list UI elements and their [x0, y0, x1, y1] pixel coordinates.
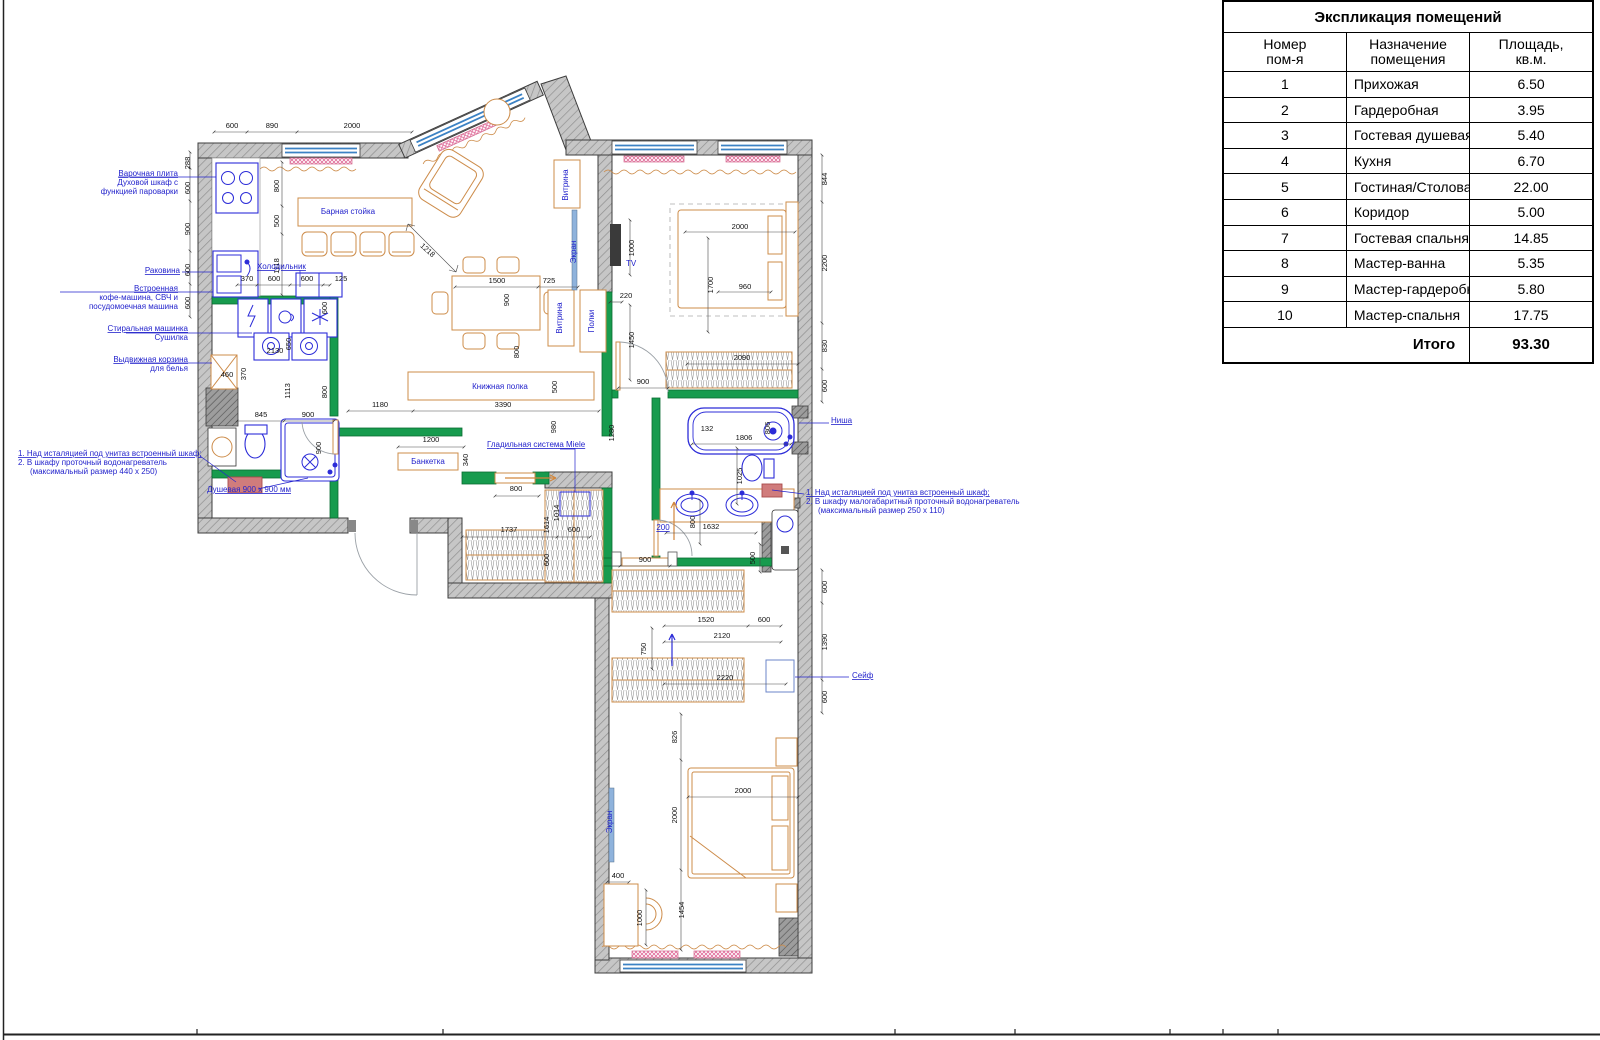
annotation-label: Раковина	[145, 266, 181, 275]
room-number: 1	[1223, 72, 1346, 98]
annotation-label: Витрина	[555, 302, 564, 334]
annotation-label: Банкетка	[411, 457, 445, 466]
dim-label: 2220	[717, 673, 734, 682]
room-area: 5.80	[1470, 276, 1593, 302]
dim-label: 1614	[542, 517, 551, 534]
bar-stool-icon	[389, 232, 414, 256]
annotation-label: 200	[656, 523, 670, 532]
room-area: 5.35	[1470, 251, 1593, 277]
dim-label: 132	[701, 424, 714, 433]
dining-chair-icon	[432, 292, 448, 314]
dim-label: 600	[820, 691, 829, 704]
dim-label: 1700	[706, 277, 715, 294]
dim-label: 1280	[607, 425, 616, 442]
dim-label: 340	[461, 454, 470, 467]
annotation-label: Душевая 900 х 900 мм	[207, 485, 291, 494]
room-number: 3	[1223, 123, 1346, 149]
room-number: 2	[1223, 97, 1346, 123]
bar-stool-icon	[360, 232, 385, 256]
annotation-label: Экран	[605, 811, 614, 834]
nightstand-icon	[776, 738, 797, 766]
annotation-label: 2. В шкафу проточный водонагреватель	[18, 458, 167, 467]
dim-label: 600	[320, 302, 329, 315]
hob-icon	[216, 163, 258, 213]
room-name: Прихожая	[1346, 72, 1469, 98]
dim-label: 2000	[344, 121, 361, 130]
dim-label: 650	[284, 338, 293, 351]
tv-icon	[610, 224, 621, 266]
annotation-label: Стиральная машинка	[108, 324, 189, 333]
dim-label: 500	[748, 552, 757, 565]
dim-label: 800	[510, 484, 523, 493]
dim-label: 1000	[627, 240, 636, 257]
dim-label: 800	[688, 516, 697, 529]
dim-label: 900	[302, 410, 315, 419]
room-number: 5	[1223, 174, 1346, 200]
col-header-area: Площадь, кв.м.	[1470, 33, 1593, 72]
annotation-label: 1. Над исталяцией под унитаз встроенный …	[18, 449, 202, 458]
room-area: 5.40	[1470, 123, 1593, 149]
microwave-icon	[271, 299, 301, 337]
room-name: Коридор	[1346, 199, 1469, 225]
radiator-icon	[694, 951, 740, 958]
dim-label: 900	[637, 377, 650, 386]
toilet-icon	[742, 455, 774, 481]
dim-label: 844	[820, 173, 829, 186]
dim-label: 800	[272, 180, 281, 193]
annotation-label: Витрина	[561, 169, 570, 201]
dim-label: 1737	[501, 525, 518, 534]
total-label: Итого	[1223, 327, 1470, 363]
entrance-door-arc	[355, 533, 417, 595]
col-header-name: Назначение помещения	[1346, 33, 1469, 72]
door-leaf	[333, 420, 338, 454]
dim-label: 1025	[735, 468, 744, 485]
room-number: 6	[1223, 199, 1346, 225]
room-number: 4	[1223, 148, 1346, 174]
dim-label: 600	[268, 274, 281, 283]
annotation-label: Экран	[569, 241, 578, 264]
dim-label: 220	[620, 291, 633, 300]
dim-label: 2120	[714, 631, 731, 640]
dim-label: 1454	[677, 902, 686, 919]
room-name: Гостиная/Столовая	[1346, 174, 1469, 200]
annotation-label: Выдвижная корзина	[113, 355, 188, 364]
annotation-label: Гладильная система Miele	[487, 440, 586, 449]
room-name: Кухня	[1346, 148, 1469, 174]
room-area: 17.75	[1470, 302, 1593, 328]
dining-chair-icon	[463, 333, 485, 349]
annotation-label: Полки	[587, 310, 596, 333]
annotation-label: (максимальный размер 440 х 250)	[30, 467, 158, 476]
annotation-label: Варочная плита	[118, 169, 178, 178]
dim-label: 1390	[820, 634, 829, 651]
dining-chair-icon	[463, 257, 485, 273]
master-bed-icon	[688, 768, 794, 878]
room-area: 6.50	[1470, 72, 1593, 98]
table-row: 9Мастер-гардеробная5.80	[1223, 276, 1593, 302]
room-area: 5.00	[1470, 199, 1593, 225]
annotation-label: (максимальный размер 250 х 110)	[818, 506, 945, 515]
table-row: 2Гардеробная3.95	[1223, 97, 1593, 123]
dryer-icon	[292, 333, 327, 360]
annotation-label: кофе-машина, СВЧ и	[99, 293, 178, 302]
room-name: Мастер-гардеробная	[1346, 276, 1469, 302]
room-name: Мастер-ванна	[1346, 251, 1469, 277]
dim-label: 1632	[703, 522, 720, 531]
explication-table: Экспликация помещений Номер пом-я Назнач…	[1222, 0, 1594, 364]
table-row: 5Гостиная/Столовая22.00	[1223, 174, 1593, 200]
annotation-label: Встроенная	[134, 284, 178, 293]
dim-label: 2090	[734, 353, 751, 362]
dim-label: 600	[542, 554, 551, 567]
shower-icon	[281, 419, 339, 481]
dim-label: 600	[820, 581, 829, 594]
shower-icon	[772, 510, 798, 570]
annotation-label: посудомоечная машина	[89, 302, 179, 311]
room-number: 10	[1223, 302, 1346, 328]
dim-label: 370	[241, 274, 254, 283]
dim-label: 800	[320, 386, 329, 399]
dim-label: 2000	[732, 222, 749, 231]
annotation-label: Книжная полка	[472, 382, 528, 391]
dim-label: 826	[670, 731, 679, 744]
dim-label: 600	[301, 274, 314, 283]
dim-label: 1014	[552, 505, 561, 522]
table-row: 10Мастер-спальня17.75	[1223, 302, 1593, 328]
annotation-label: Барная стойка	[321, 207, 376, 216]
room-area: 22.00	[1470, 174, 1593, 200]
room-name: Гостевая душевая	[1346, 123, 1469, 149]
annotation-label: 1. Над исталяцией под унитаз встроенный …	[806, 488, 990, 497]
bar-stool-icon	[331, 232, 356, 256]
dim-label: 2200	[820, 255, 829, 272]
room-area: 14.85	[1470, 225, 1593, 251]
drawing-sheet: 6008902000121828860090060060080050011183…	[0, 0, 1600, 1040]
dim-label: 1000	[635, 910, 644, 927]
dim-label: 1500	[489, 276, 506, 285]
guest-bed-icon	[678, 202, 798, 316]
annotation-label: Сушилка	[155, 333, 189, 342]
dim-label: 400	[612, 871, 625, 880]
dim-label: 500	[550, 381, 559, 394]
dim-label: 2000	[735, 786, 752, 795]
dim-label: 900	[639, 555, 652, 564]
desk	[604, 884, 638, 946]
annotation-label: Сейф	[852, 671, 874, 680]
room-area: 6.70	[1470, 148, 1593, 174]
room-number: 8	[1223, 251, 1346, 277]
dim-label: 800	[512, 346, 521, 359]
side-table-icon	[484, 99, 510, 125]
dim-label: 960	[739, 282, 752, 291]
table-row: 4Кухня6.70	[1223, 148, 1593, 174]
dim-label: 500	[272, 215, 281, 228]
room-number: 9	[1223, 276, 1346, 302]
dim-label: 2130	[267, 346, 284, 355]
dim-label: 460	[221, 370, 234, 379]
table-row: 1Прихожая6.50	[1223, 72, 1593, 98]
dim-label: 125	[335, 274, 348, 283]
door-leaf	[616, 342, 620, 390]
table-title: Экспликация помещений	[1223, 1, 1593, 33]
room-name: Гостевая спальня/Детская	[1346, 225, 1469, 251]
table-row: 7Гостевая спальня/Детская14.85	[1223, 225, 1593, 251]
dim-label: 845	[255, 410, 268, 419]
dim-label: 288	[183, 157, 192, 170]
table-row: 8Мастер-ванна5.35	[1223, 251, 1593, 277]
dim-label: 2000	[670, 807, 679, 824]
room-number: 7	[1223, 225, 1346, 251]
dim-label: 1180	[372, 400, 388, 409]
dim-label: 1520	[698, 615, 715, 624]
dim-label: 600	[183, 264, 192, 277]
annotation-label: для белья	[150, 364, 188, 373]
dim-label: 900	[314, 442, 323, 455]
dim-label: 600	[226, 121, 239, 130]
annotation-label: Холодильник	[257, 262, 306, 271]
dim-label: 980	[549, 421, 558, 434]
coffee-machine-icon	[238, 299, 268, 337]
annotation-label: функцией пароварки	[101, 187, 178, 196]
dim-label: 600	[568, 525, 581, 534]
dim-label: 725	[543, 276, 556, 285]
table-row: 6Коридор5.00	[1223, 199, 1593, 225]
dim-label: 3390	[495, 400, 512, 409]
dim-label: 600	[758, 615, 771, 624]
annotation-label: Духовой шкаф с	[117, 178, 178, 187]
room-area: 3.95	[1470, 97, 1593, 123]
dim-label: 1200	[423, 435, 440, 444]
dim-label: 806	[763, 422, 772, 435]
safe-icon	[766, 660, 794, 692]
radiator-icon	[726, 156, 780, 162]
dining-chair-icon	[497, 257, 519, 273]
annotation-label: Ниша	[831, 416, 853, 425]
dim-label: 1113	[283, 383, 292, 399]
radiator-icon	[624, 156, 684, 162]
total-value: 93.30	[1470, 327, 1593, 363]
radiator-icon	[632, 951, 678, 958]
room-name: Мастер-спальня	[1346, 302, 1469, 328]
dim-label: 370	[239, 368, 248, 381]
water-heater-icon	[762, 484, 782, 497]
dim-label: 750	[639, 643, 648, 656]
dim-label: 600	[183, 182, 192, 195]
annotation-label: TV	[626, 259, 637, 268]
dim-label: 1806	[736, 433, 753, 442]
explication-table-body: 1Прихожая6.502Гардеробная3.953Гостевая д…	[1223, 72, 1593, 328]
dim-label: 900	[502, 294, 511, 307]
annotation-label: 2. В шкафу малогабаритный проточный водо…	[806, 497, 1020, 506]
dim-label: 900	[183, 223, 192, 236]
dim-label: 600	[820, 380, 829, 393]
dim-label: 890	[266, 121, 279, 130]
dim-label: 1450	[627, 332, 636, 349]
col-header-number: Номер пом-я	[1223, 33, 1346, 72]
bar-stool-icon	[302, 232, 327, 256]
radiator-icon	[290, 158, 352, 164]
dim-label: 600	[183, 297, 192, 310]
nightstand-icon	[776, 884, 797, 912]
room-name: Гардеробная	[1346, 97, 1469, 123]
dim-label: 830	[820, 340, 829, 353]
table-row: 3Гостевая душевая5.40	[1223, 123, 1593, 149]
